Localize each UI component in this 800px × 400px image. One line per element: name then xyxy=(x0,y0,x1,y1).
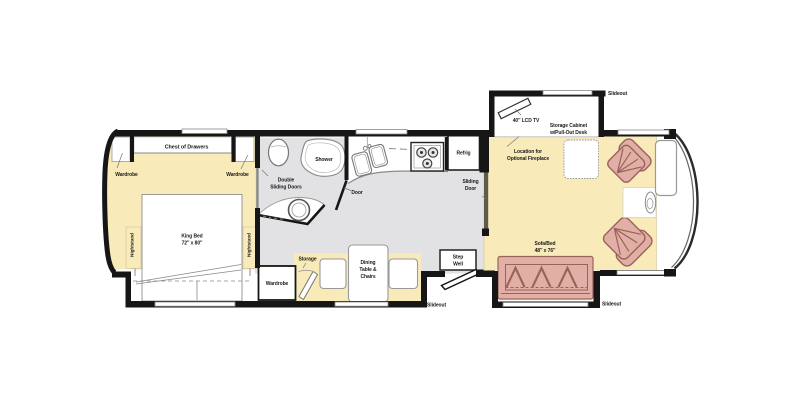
svg-text:48″ x 76″: 48″ x 76″ xyxy=(535,248,556,254)
svg-text:Wardrobe: Wardrobe xyxy=(226,172,249,178)
svg-text:Slideout: Slideout xyxy=(427,303,446,309)
svg-text:Chest of Drawers: Chest of Drawers xyxy=(165,145,209,151)
svg-text:Slideout: Slideout xyxy=(602,302,621,308)
svg-text:Shower: Shower xyxy=(315,157,333,163)
svg-text:Optional Fireplace: Optional Fireplace xyxy=(507,156,549,162)
svg-text:Nightstand: Nightstand xyxy=(130,233,135,257)
svg-text:Door: Door xyxy=(465,186,476,192)
svg-text:Dining: Dining xyxy=(360,260,375,266)
svg-text:72″ x 80″: 72″ x 80″ xyxy=(182,241,203,247)
svg-text:Wardrobe: Wardrobe xyxy=(266,281,289,287)
svg-text:Storage Cabinet: Storage Cabinet xyxy=(550,123,588,129)
svg-text:40″ LCD TV: 40″ LCD TV xyxy=(513,118,540,124)
svg-text:Location for: Location for xyxy=(514,149,542,155)
svg-text:Nightstand: Nightstand xyxy=(247,233,252,257)
svg-text:Sliding Doors: Sliding Doors xyxy=(270,185,302,191)
svg-text:Step: Step xyxy=(453,255,464,261)
svg-text:Table &: Table & xyxy=(359,267,377,273)
svg-text:Wardrobe: Wardrobe xyxy=(115,172,138,178)
svg-text:Door: Door xyxy=(351,190,362,196)
svg-text:Refrig: Refrig xyxy=(457,151,471,157)
svg-text:Storage: Storage xyxy=(298,257,316,263)
svg-text:Slideout: Slideout xyxy=(608,91,627,97)
svg-text:Double: Double xyxy=(278,178,295,184)
svg-text:Sliding: Sliding xyxy=(462,179,478,185)
svg-text:King Bed: King Bed xyxy=(181,234,202,240)
svg-text:w/Pull-Out Desk: w/Pull-Out Desk xyxy=(549,130,587,136)
svg-text:Well: Well xyxy=(453,262,464,268)
svg-text:Chairs: Chairs xyxy=(360,274,375,280)
svg-text:Sofa/Bed: Sofa/Bed xyxy=(534,241,555,247)
